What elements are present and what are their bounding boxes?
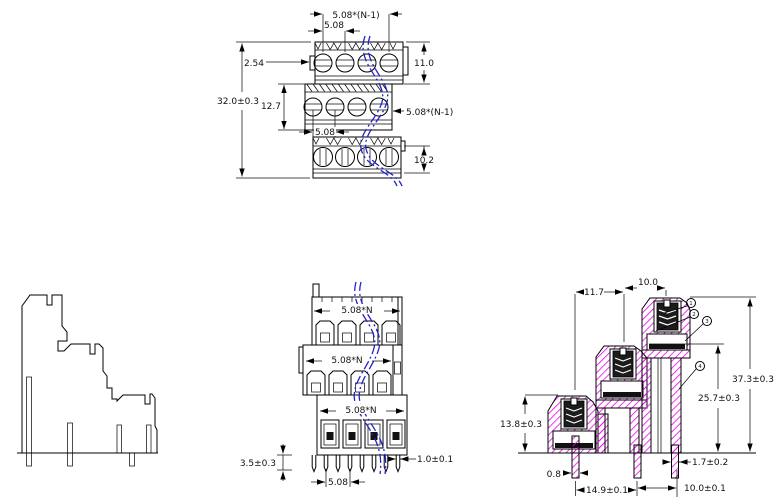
drawing-sheet: 5.08*(N-1) 5.08 2.54 11.0 32.0±0.3 12.7 …: [0, 0, 776, 504]
dim-pin-width-right: 1.7±0.2: [692, 458, 728, 468]
view-front: 5.08*(N-1) 5.08 2.54 11.0 32.0±0.3 12.7 …: [195, 5, 465, 190]
dim-tier2-height: 12.7: [261, 102, 281, 112]
pin-low: [572, 436, 579, 478]
solder-pins: [312, 455, 400, 472]
dim-pin-projection: 3.5±0.3: [240, 459, 276, 469]
dim-pitch-group-top: 5.08*(N-1): [332, 11, 379, 21]
callout-4: 4: [698, 364, 702, 370]
wire-openings-row-3: [321, 420, 405, 448]
profile-outline: [22, 295, 157, 453]
dim-pitch-top: 5.08: [324, 21, 344, 31]
dim-step-top: 10.0: [638, 278, 658, 288]
wire-openings-row-1: [316, 321, 400, 345]
callout-1: 1: [689, 301, 693, 307]
dim-tier1-height: 11.0: [414, 59, 434, 69]
callout-2: 2: [692, 312, 696, 318]
dim-total-height: 32.0±0.3: [217, 97, 259, 107]
callout-3: 3: [705, 319, 709, 325]
dim-step-upper: 11.7: [584, 288, 604, 298]
dim-pitch-group-mid: 5.08*(N-1): [406, 108, 453, 118]
wire-openings-row-2: [307, 371, 391, 395]
screw-row-1: [314, 54, 398, 72]
dim-pin-span-left: 14.9±0.1: [586, 486, 628, 496]
dim-width-bot: 5.08*N: [345, 406, 376, 416]
view-front-wire-entry: 5.08*N 5.08*N 5.08*N 3.5±0.3 1.0±0.1 5.0…: [225, 278, 470, 500]
pin-tall: [672, 445, 679, 478]
dim-height-total: 37.3±0.3: [732, 375, 774, 385]
dim-width-mid: 5.08*N: [331, 356, 362, 366]
dim-pin-pitch: 5.08: [328, 478, 348, 488]
dim-pin-width-left: 0.8: [547, 470, 562, 480]
dim-pitch-mid: 5.08: [315, 128, 335, 138]
screw-row-2: [304, 98, 388, 116]
dim-pin-span-right: 10.0±0.1: [684, 484, 726, 494]
view-side-profile: [15, 285, 165, 480]
dim-height-mid: 25.7±0.3: [698, 394, 740, 404]
screw-row-3: [314, 148, 399, 167]
dim-tier3-height: 10.2: [414, 156, 434, 166]
pin-mid: [634, 445, 641, 478]
dim-height-low: 13.8±0.3: [500, 420, 542, 430]
view-section: 11.7 10.0 37.3±0.3 25.7±0.3 13.8±0.3 0.8…: [495, 278, 776, 504]
dim-width-top: 5.08*N: [341, 306, 372, 316]
dim-row-offset: 2.54: [244, 59, 264, 69]
dim-pin-width: 1.0±0.1: [417, 455, 453, 465]
